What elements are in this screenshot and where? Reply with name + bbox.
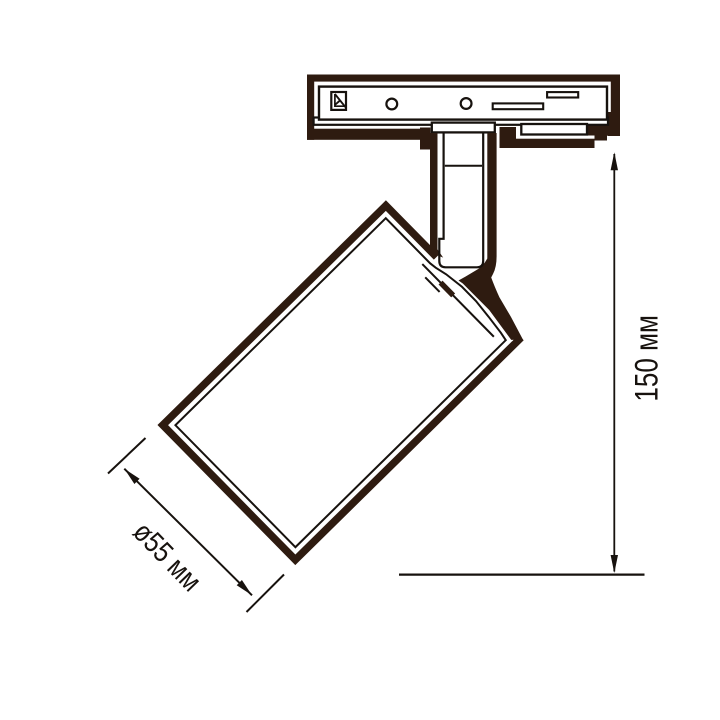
svg-text:150 мм: 150 мм: [628, 315, 664, 402]
